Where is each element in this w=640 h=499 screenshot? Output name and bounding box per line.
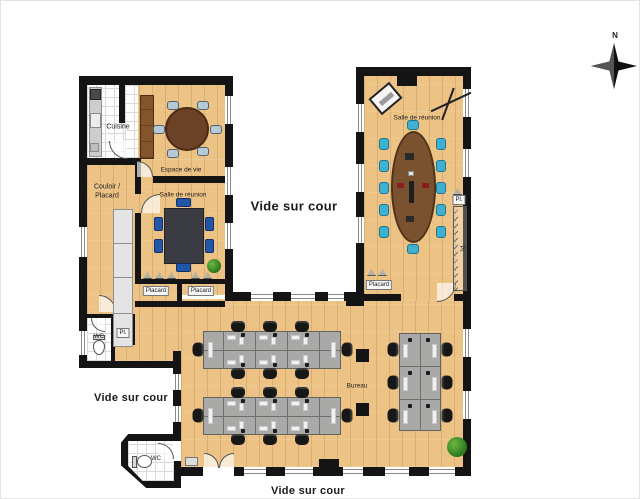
- compass-icon: [591, 43, 637, 89]
- desk-lamp-icon: [426, 404, 430, 408]
- paper: [331, 342, 336, 358]
- window: [356, 164, 364, 192]
- label-placard-right: Placard: [366, 280, 392, 290]
- window: [385, 467, 409, 476]
- desk-lamp-icon: [408, 338, 412, 342]
- paper: [271, 337, 276, 345]
- window: [244, 467, 266, 476]
- stove-icon: [90, 89, 101, 100]
- pillar: [356, 349, 369, 362]
- floor-plan: Cuisine Espace de vie Couloir / Placard …: [0, 0, 640, 499]
- office-chair: [263, 387, 277, 398]
- room-label-bureau: Bureau: [347, 383, 368, 390]
- window: [285, 467, 313, 476]
- conference-chair: [436, 160, 446, 172]
- wall: [79, 76, 87, 368]
- office-chair: [193, 343, 204, 357]
- paper: [208, 408, 213, 424]
- office-chair: [231, 321, 245, 332]
- window: [225, 223, 233, 249]
- desk-lamp-icon: [305, 399, 309, 403]
- window: [328, 292, 344, 301]
- office-chair: [442, 343, 453, 357]
- paper: [432, 377, 437, 391]
- desk-lamp-icon: [305, 429, 309, 433]
- conference-chair: [379, 160, 389, 172]
- paper: [303, 355, 308, 363]
- wall: [135, 301, 225, 307]
- desk-lamp-icon: [305, 363, 309, 367]
- office-chair: [231, 434, 245, 445]
- paper: [239, 337, 244, 345]
- room-label-couloir-line2: Placard: [95, 193, 119, 200]
- desk-lamp-icon: [273, 429, 277, 433]
- conference-chair: [407, 244, 419, 254]
- paper: [403, 344, 408, 358]
- wall: [119, 85, 125, 123]
- conference-chair: [436, 204, 446, 216]
- paper: [259, 426, 268, 431]
- label-placard-1: Placard: [143, 286, 169, 296]
- conference-chair: [407, 120, 419, 130]
- desk-lamp-icon: [273, 333, 277, 337]
- paper: [239, 355, 244, 363]
- wall: [364, 294, 401, 301]
- window: [463, 149, 471, 177]
- wall: [135, 213, 141, 281]
- radiator: [185, 457, 198, 466]
- paper: [259, 401, 268, 406]
- office-chair: [295, 387, 309, 398]
- door-opening: [173, 441, 181, 461]
- conference-chair: [379, 182, 389, 194]
- paper: [303, 337, 308, 345]
- table-item: [406, 216, 414, 222]
- label-wc-bottom: WC: [151, 456, 161, 462]
- office-chair: [295, 434, 309, 445]
- room-label-salle-reunion-left: Salle de réunion: [160, 192, 207, 199]
- paper: [271, 421, 276, 429]
- desk-lamp-icon: [241, 333, 245, 337]
- paper: [239, 421, 244, 429]
- paper: [239, 403, 244, 411]
- paper: [403, 410, 408, 424]
- window: [251, 292, 273, 301]
- paper: [259, 360, 268, 365]
- paper: [271, 355, 276, 363]
- office-chair: [263, 321, 277, 332]
- office-chair: [193, 409, 204, 423]
- window: [343, 467, 363, 476]
- label-placard-2: Placard: [188, 286, 214, 296]
- desk-lamp-icon: [241, 429, 245, 433]
- window: [291, 292, 315, 301]
- plant-icon: [207, 259, 221, 273]
- paper: [227, 401, 236, 406]
- window: [225, 167, 233, 195]
- window: [79, 331, 87, 355]
- door-opening: [203, 467, 234, 476]
- wall: [79, 361, 181, 368]
- window: [463, 391, 471, 419]
- paper: [291, 335, 300, 340]
- label-pl-left: Pl.: [116, 328, 129, 338]
- plant-icon: [447, 437, 467, 457]
- office-chair: [263, 434, 277, 445]
- paper: [227, 426, 236, 431]
- label-vide-sur-cour-bottom: Vide sur cour: [271, 485, 345, 497]
- window: [356, 104, 364, 132]
- pillar: [319, 459, 339, 467]
- room-label-espace-de-vie: Espace de vie: [161, 167, 202, 174]
- office-chair: [231, 387, 245, 398]
- wall-notch: [397, 76, 417, 86]
- round-table: [165, 107, 209, 151]
- wall: [153, 176, 225, 183]
- table-item: [422, 183, 429, 188]
- wall: [87, 158, 138, 165]
- office-chair: [231, 368, 245, 379]
- table-item: [408, 171, 414, 176]
- cabinet: [113, 209, 133, 347]
- office-chair: [442, 376, 453, 390]
- paper: [291, 401, 300, 406]
- conference-chair: [436, 138, 446, 150]
- window: [225, 96, 233, 124]
- compass-north-label: N: [597, 31, 633, 43]
- conference-chair: [436, 226, 446, 238]
- desk-lamp-icon: [273, 399, 277, 403]
- desk-divider: [204, 416, 340, 417]
- office-chair: [388, 409, 399, 423]
- window: [429, 467, 455, 476]
- label-vide-sur-cour-center: Vide sur cour: [251, 199, 338, 214]
- desk-divider: [204, 350, 340, 351]
- conference-chair: [379, 226, 389, 238]
- office-chair: [295, 321, 309, 332]
- table-item: [405, 153, 414, 160]
- meeting-table: [164, 208, 204, 264]
- conference-chair: [436, 182, 446, 194]
- paper: [432, 410, 437, 424]
- paper: [291, 426, 300, 431]
- desk-lamp-icon: [426, 338, 430, 342]
- desk-lamp-icon: [241, 399, 245, 403]
- paper: [303, 403, 308, 411]
- toilet-icon: [137, 455, 152, 468]
- window: [463, 329, 471, 357]
- paper: [291, 360, 300, 365]
- label-pl-right-side: Pl.: [458, 245, 464, 252]
- paper: [403, 377, 408, 391]
- label-wc-left: WC: [94, 334, 104, 340]
- window: [173, 406, 181, 422]
- room-label-couloir-line1: Couloir /: [94, 184, 120, 191]
- table-item: [409, 181, 414, 203]
- paper: [331, 408, 336, 424]
- desk-lamp-icon: [426, 371, 430, 375]
- office-chair: [388, 343, 399, 357]
- window: [173, 374, 181, 390]
- wall: [454, 294, 471, 301]
- desk-lamp-icon: [408, 371, 412, 375]
- conference-chair: [379, 138, 389, 150]
- paper: [227, 360, 236, 365]
- office-chair: [388, 376, 399, 390]
- wall: [356, 67, 471, 76]
- window: [356, 217, 364, 243]
- office-chair: [342, 343, 353, 357]
- pillar: [346, 292, 364, 306]
- paper: [227, 335, 236, 340]
- desk-lamp-icon: [273, 363, 277, 367]
- office-chair: [263, 368, 277, 379]
- paper: [432, 344, 437, 358]
- office-chair: [342, 409, 353, 423]
- label-pl-right-top: Pl.: [452, 195, 465, 205]
- desk-divider: [420, 334, 421, 430]
- window: [79, 227, 87, 257]
- sink-icon: [90, 113, 101, 128]
- desk-lamp-icon: [305, 333, 309, 337]
- office-chair: [295, 368, 309, 379]
- paper: [259, 335, 268, 340]
- paper: [208, 342, 213, 358]
- table-item: [397, 183, 404, 188]
- paper: [303, 421, 308, 429]
- wardrobe: [140, 95, 154, 159]
- desk-lamp-icon: [241, 363, 245, 367]
- desk-lamp-icon: [408, 404, 412, 408]
- pillar: [356, 403, 369, 416]
- wall: [79, 76, 233, 85]
- room-label-cuisine: Cuisine: [106, 124, 129, 131]
- label-vide-sur-cour-left: Vide sur cour: [94, 392, 168, 404]
- conference-chair: [379, 204, 389, 216]
- wall: [177, 282, 182, 301]
- office-chair: [442, 409, 453, 423]
- paper: [271, 403, 276, 411]
- appliance-icon: [90, 143, 99, 152]
